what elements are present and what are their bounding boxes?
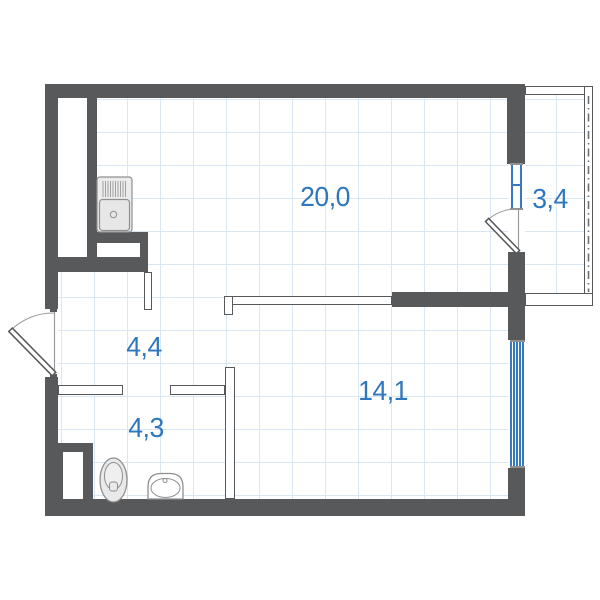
balcony-window xyxy=(511,163,522,210)
balcony-window-cap-bottom xyxy=(510,208,523,210)
area-label-bedroom: 14,1 xyxy=(358,377,408,405)
bedroom-window xyxy=(510,340,525,468)
partition-hall-jamb xyxy=(144,272,152,310)
wall-top xyxy=(45,84,525,98)
partition-bedroom-stub xyxy=(224,296,233,315)
wall-right-top xyxy=(507,84,525,164)
wall-kitchen-bar-top xyxy=(87,232,148,243)
area-label-living-kitchen: 20,0 xyxy=(300,183,350,211)
area-label-balcony: 3,4 xyxy=(532,185,568,213)
duct-shaft xyxy=(58,98,87,257)
bath-duct-inset xyxy=(63,452,83,499)
balcony-window-cap-top xyxy=(510,163,523,165)
entrance-door-icon xyxy=(9,312,56,376)
door-jamb-top xyxy=(50,309,57,312)
wall-kitchen-bar-bottom xyxy=(45,257,148,272)
kitchen-niche xyxy=(97,243,140,257)
wall-left-lower xyxy=(45,377,58,516)
partition-bath-left xyxy=(58,385,123,395)
partition-bath-vertical xyxy=(225,367,235,499)
wall-left-upper xyxy=(45,84,58,309)
wall-right-bottom xyxy=(508,468,525,516)
wall-right-pillar xyxy=(508,252,525,340)
wall-kitchen-connector xyxy=(140,243,148,257)
wall-bedroom-divider xyxy=(392,292,510,307)
balcony-window-mid-rail xyxy=(513,184,520,186)
area-label-hallway: 4,4 xyxy=(126,333,162,361)
wall-bottom xyxy=(45,499,525,516)
partition-bedroom-bar xyxy=(224,296,392,305)
balcony-wall-bottom xyxy=(525,293,593,306)
floor-plan: 20,0 3,4 4,4 4,3 14,1 xyxy=(0,0,600,600)
balcony-wall-top xyxy=(525,86,593,95)
partition-bath-right xyxy=(170,385,225,395)
balcony-wall-right xyxy=(584,86,593,306)
area-label-bathroom: 4,3 xyxy=(128,414,164,442)
